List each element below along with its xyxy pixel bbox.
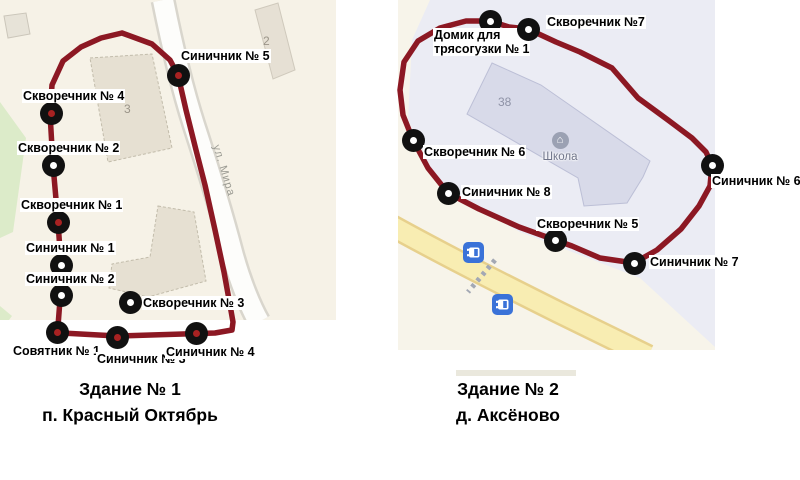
building-2-number: 2	[263, 34, 270, 48]
marker-icon	[167, 64, 190, 87]
marker-label: Скворечник № 1	[20, 198, 123, 212]
marker-label: Скворечник № 4	[22, 89, 125, 103]
marker-dot	[445, 190, 452, 197]
marker-icon	[50, 284, 73, 307]
bus-stop-icon	[492, 294, 513, 315]
marker-dot	[50, 162, 57, 169]
marker-label: Скворечник №7	[546, 15, 646, 29]
building-3-number: 3	[124, 102, 131, 116]
marker-dot	[114, 334, 121, 341]
marker-icon	[517, 18, 540, 41]
marker-label: Синичник № 2	[25, 272, 116, 286]
marker-label: Совятник № 1	[12, 344, 101, 358]
school-poi: ⌂ Школа	[535, 132, 585, 163]
marker-dot	[193, 330, 200, 337]
marker-dot	[487, 18, 494, 25]
caption-title: Здание № 2	[398, 376, 618, 402]
marker-label: Домик для трясогузки № 1	[433, 28, 530, 56]
marker-dot	[175, 72, 182, 79]
marker-label: Скворечник № 6	[423, 145, 526, 159]
marker-dot	[58, 292, 65, 299]
marker-label: Синичник № 4	[165, 345, 256, 359]
marker-icon	[46, 321, 69, 344]
marker-dot	[58, 262, 65, 269]
marker-dot	[410, 137, 417, 144]
marker-dot	[631, 260, 638, 267]
marker-dot	[55, 219, 62, 226]
two-maps-figure: ул. Мира 3 2 38 ⌂ Школа Синичник № 5Скво…	[0, 0, 800, 480]
marker-label: Синичник № 6	[711, 174, 800, 188]
marker-icon	[623, 252, 646, 275]
marker-icon	[40, 102, 63, 125]
marker-dot	[127, 299, 134, 306]
marker-dot	[54, 329, 61, 336]
caption-building-1: Здание № 1 п. Красный Октябрь	[20, 376, 240, 428]
building-38-number: 38	[498, 95, 511, 109]
marker-dot	[525, 26, 532, 33]
school-icon: ⌂	[552, 132, 569, 149]
caption-building-2: Здание № 2 д. Аксёново	[398, 376, 618, 428]
marker-icon	[544, 229, 567, 252]
marker-icon	[106, 326, 129, 349]
small-building	[4, 13, 30, 38]
marker-label: Синичник № 1	[25, 241, 116, 255]
marker-dot	[48, 110, 55, 117]
marker-label: Синичник № 5	[180, 49, 271, 63]
marker-dot	[552, 237, 559, 244]
marker-label: Скворечник № 3	[142, 296, 245, 310]
marker-icon	[402, 129, 425, 152]
marker-icon	[47, 211, 70, 234]
caption-location: д. Аксёново	[398, 402, 618, 428]
marker-dot	[709, 162, 716, 169]
caption-title: Здание № 1	[20, 376, 240, 402]
marker-label: Синичник № 8	[461, 185, 552, 199]
caption-location: п. Красный Октябрь	[20, 402, 240, 428]
marker-label: Синичник № 7	[649, 255, 740, 269]
school-name-label: Школа	[535, 151, 585, 163]
marker-icon	[437, 182, 460, 205]
marker-label: Скворечник № 2	[17, 141, 120, 155]
bus-stop-icon	[463, 242, 484, 263]
marker-label: Скворечник № 5	[536, 217, 639, 231]
marker-icon	[42, 154, 65, 177]
marker-icon	[185, 322, 208, 345]
marker-icon	[119, 291, 142, 314]
